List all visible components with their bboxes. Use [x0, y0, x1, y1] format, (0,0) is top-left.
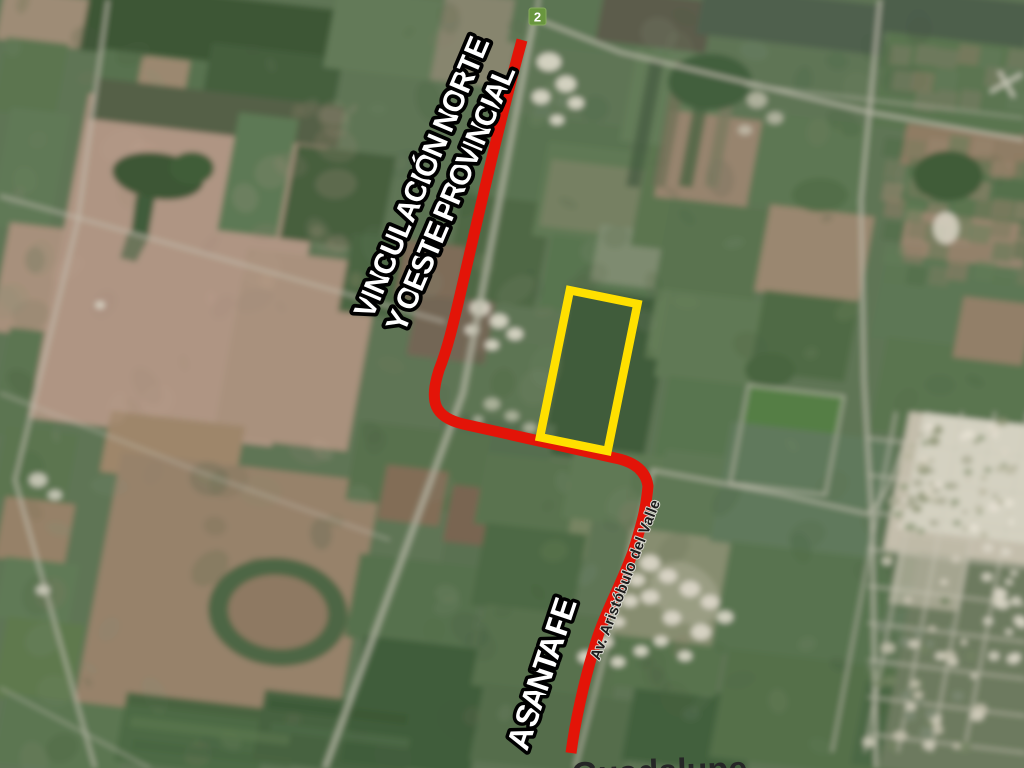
svg-text:2: 2 — [534, 10, 541, 25]
